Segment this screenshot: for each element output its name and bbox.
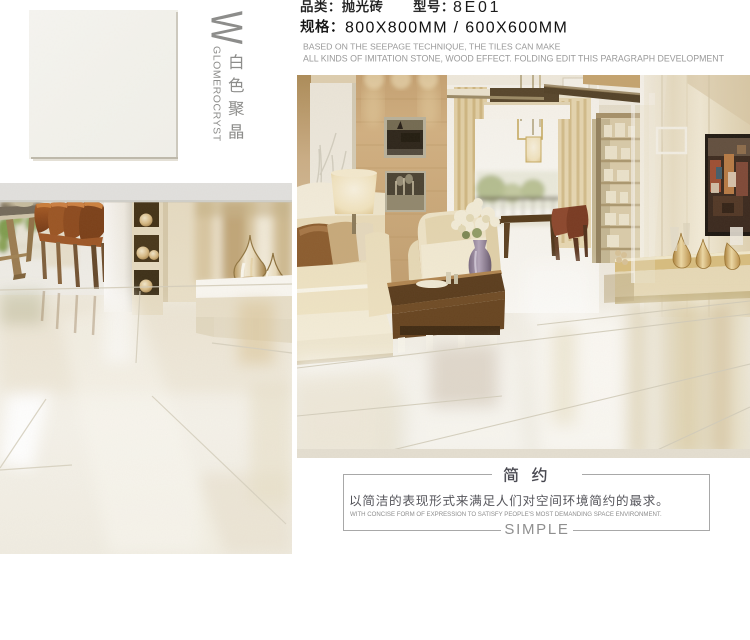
svg-text:800X800MM / 600X600MM: 800X800MM / 600X600MM: [345, 20, 568, 37]
svg-text:8E01: 8E01: [453, 0, 501, 16]
svg-text:BASED ON THE SEEPAGE TECHNIQUE: BASED ON THE SEEPAGE TECHNIQUE, THE TILE…: [303, 42, 561, 52]
svg-text:ALL KINDS OF IMITATION STONE,: ALL KINDS OF IMITATION STONE, WOOD EFFEC…: [303, 54, 725, 64]
svg-text:W: W: [205, 11, 252, 44]
svg-text:GLOMEROCRYST: GLOMEROCRYST: [211, 46, 223, 142]
